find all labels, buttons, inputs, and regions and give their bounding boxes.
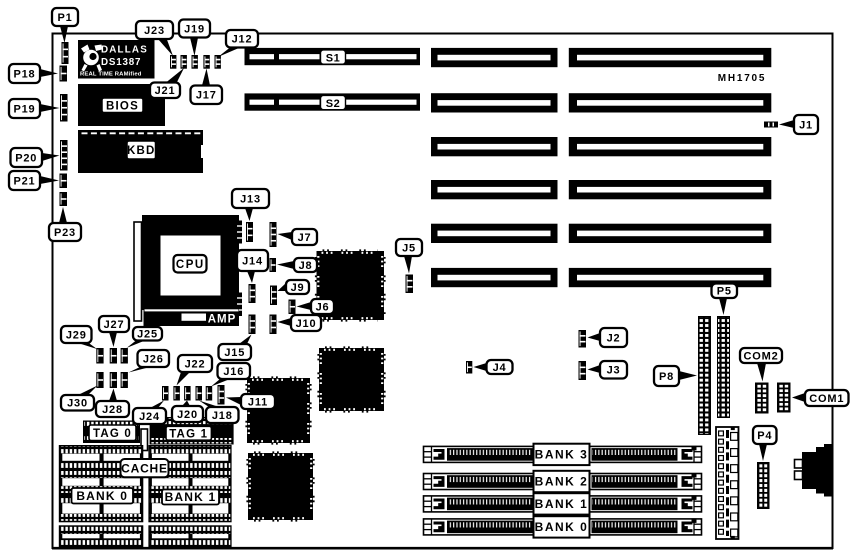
svg-text:P8: P8 bbox=[659, 371, 674, 383]
svg-text:BANK 0: BANK 0 bbox=[76, 489, 128, 503]
svg-text:BANK 2: BANK 2 bbox=[535, 475, 589, 489]
svg-text:BANK 0: BANK 0 bbox=[535, 520, 589, 534]
svg-text:J10: J10 bbox=[296, 318, 317, 330]
svg-text:J13: J13 bbox=[240, 193, 261, 205]
svg-text:J14: J14 bbox=[242, 255, 263, 267]
svg-text:J12: J12 bbox=[232, 34, 253, 46]
svg-text:BIOS: BIOS bbox=[106, 100, 139, 112]
svg-text:J22: J22 bbox=[185, 358, 206, 370]
svg-text:J19: J19 bbox=[184, 23, 205, 35]
svg-text:J2: J2 bbox=[607, 332, 621, 344]
svg-text:P1: P1 bbox=[57, 12, 72, 24]
svg-text:TAG 1: TAG 1 bbox=[169, 428, 208, 440]
svg-text:COM1: COM1 bbox=[809, 393, 844, 405]
svg-text:J8: J8 bbox=[299, 260, 313, 272]
svg-text:J4: J4 bbox=[493, 362, 507, 374]
svg-text:J9: J9 bbox=[291, 282, 305, 294]
svg-text:S2: S2 bbox=[326, 98, 340, 110]
svg-text:J7: J7 bbox=[298, 232, 312, 244]
svg-text:REAL TIME RAMified: REAL TIME RAMified bbox=[80, 71, 142, 77]
svg-text:J25: J25 bbox=[137, 329, 158, 341]
svg-text:J23: J23 bbox=[144, 25, 165, 37]
svg-text:BANK 1: BANK 1 bbox=[535, 497, 589, 511]
svg-text:AMP: AMP bbox=[208, 314, 237, 326]
svg-text:CACHE: CACHE bbox=[121, 461, 168, 475]
svg-text:DALLAS: DALLAS bbox=[101, 44, 148, 55]
svg-text:J28: J28 bbox=[102, 404, 123, 416]
svg-text:P18: P18 bbox=[14, 68, 36, 80]
svg-text:J15: J15 bbox=[224, 347, 245, 359]
svg-text:P20: P20 bbox=[15, 152, 37, 164]
svg-text:J16: J16 bbox=[223, 366, 244, 378]
svg-text:P4: P4 bbox=[757, 430, 772, 442]
svg-text:BANK 3: BANK 3 bbox=[535, 448, 589, 462]
svg-text:MH1705: MH1705 bbox=[718, 73, 767, 84]
svg-text:P5: P5 bbox=[717, 286, 732, 298]
svg-text:DS1387: DS1387 bbox=[101, 57, 141, 68]
svg-text:J11: J11 bbox=[248, 396, 268, 408]
svg-text:BANK 1: BANK 1 bbox=[165, 490, 217, 504]
svg-text:P23: P23 bbox=[54, 227, 76, 239]
svg-text:J27: J27 bbox=[104, 319, 125, 331]
svg-text:J17: J17 bbox=[196, 90, 217, 102]
svg-text:S1: S1 bbox=[326, 52, 340, 64]
svg-text:J24: J24 bbox=[139, 411, 160, 423]
svg-text:J26: J26 bbox=[143, 353, 164, 365]
svg-text:COM2: COM2 bbox=[744, 350, 779, 362]
svg-text:KBD: KBD bbox=[127, 145, 156, 157]
svg-text:J18: J18 bbox=[212, 410, 233, 422]
svg-text:J3: J3 bbox=[607, 365, 621, 377]
svg-text:J1: J1 bbox=[799, 119, 813, 131]
svg-text:J5: J5 bbox=[402, 242, 416, 254]
svg-text:J20: J20 bbox=[177, 409, 198, 421]
svg-text:TAG 0: TAG 0 bbox=[93, 428, 132, 440]
svg-text:CPU: CPU bbox=[176, 259, 205, 271]
svg-text:J30: J30 bbox=[67, 398, 88, 410]
svg-text:J21: J21 bbox=[155, 85, 176, 97]
svg-text:J6: J6 bbox=[316, 301, 330, 313]
svg-text:P19: P19 bbox=[14, 103, 36, 115]
svg-text:J29: J29 bbox=[66, 329, 87, 341]
svg-text:P21: P21 bbox=[14, 175, 36, 187]
